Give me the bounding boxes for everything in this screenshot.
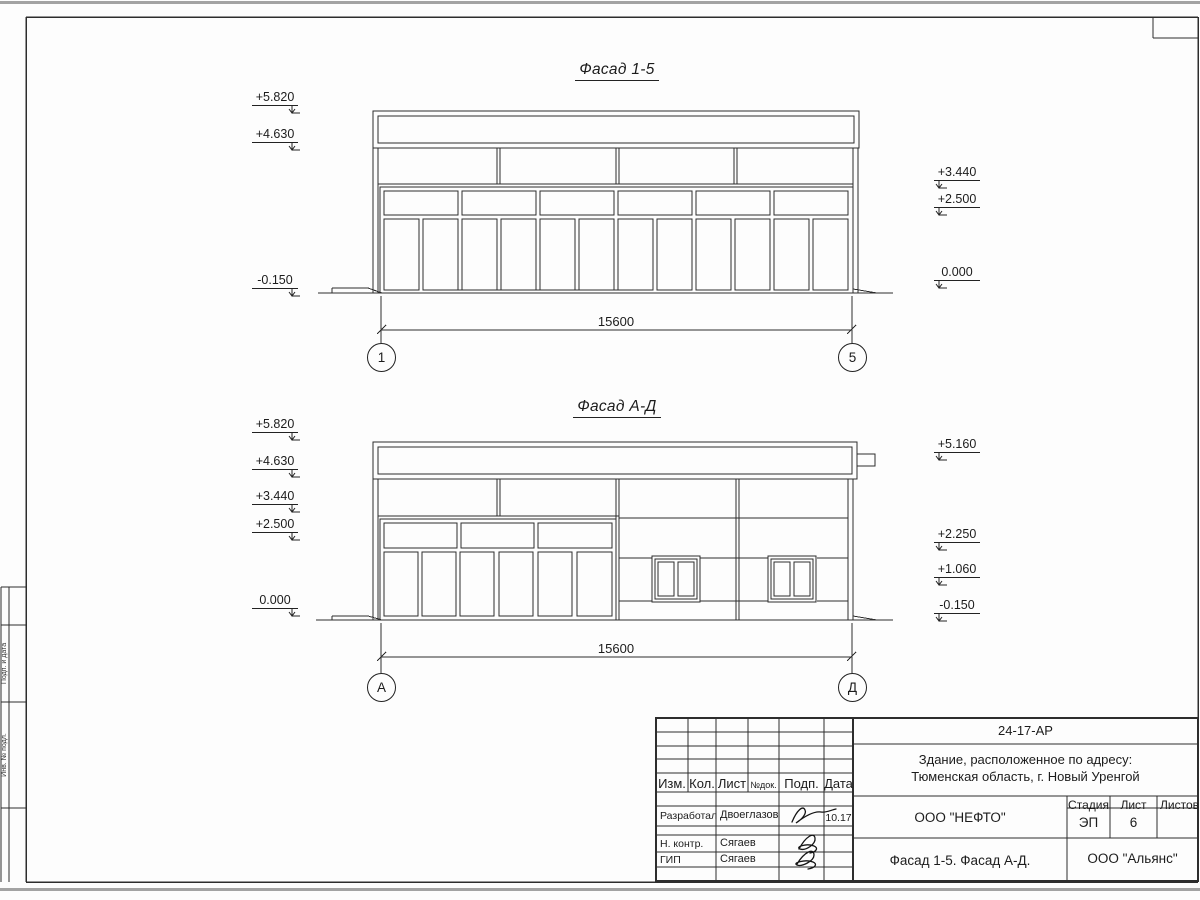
elevation-mark: +5.820 — [252, 91, 298, 106]
elevation-mark: +3.440 — [252, 490, 298, 505]
facade-a-d-title: Фасад А-Д — [517, 398, 717, 416]
role-nkontr: Н. контр. — [660, 838, 703, 850]
drawing-sheet: Фасад 1-5 Фасад А-Д +5.820 +4.630 -0.150… — [0, 0, 1200, 900]
elevation-arrow-icon — [932, 280, 947, 290]
elevation-mark: +5.820 — [252, 418, 298, 433]
elevation-mark: -0.150 — [252, 274, 298, 289]
col-header-list: Лист — [716, 776, 748, 791]
sheets-label: Листов — [1157, 798, 1200, 812]
elevation-mark: +5.160 — [934, 438, 980, 453]
sheet-title: Фасад 1-5. Фасад А-Д. — [853, 853, 1067, 868]
elevation-arrow-icon — [285, 504, 300, 514]
name-dvoeglazov: Двоеглазов — [720, 809, 778, 821]
elevation-arrow-icon — [285, 469, 300, 479]
sheet-value: 6 — [1110, 815, 1157, 830]
elevation-mark: +2.250 — [934, 528, 980, 543]
elevation-arrow-icon — [932, 542, 947, 552]
facade-a-d-linework — [316, 442, 893, 673]
elevation-arrow-icon — [285, 608, 300, 618]
facade-1-5-title: Фасад 1-5 — [517, 61, 717, 79]
elevation-mark: -0.150 — [934, 599, 980, 614]
object-address: Здание, расположенное по адресу: Тюменск… — [853, 751, 1198, 785]
elevation-mark: +3.440 — [934, 166, 980, 181]
elevation-arrow-icon — [285, 142, 300, 152]
stage-label: Стадия — [1067, 798, 1110, 812]
elevation-arrow-icon — [932, 613, 947, 623]
dimension-label-facade-a-d: 15600 — [541, 641, 691, 656]
axis-bubble-5: 5 — [838, 343, 867, 372]
name-syagaev-1: Сягаев — [720, 837, 756, 849]
elevation-mark: 0.000 — [934, 266, 980, 281]
doc-number: 24-17-АР — [853, 723, 1198, 738]
elevation-arrow-icon — [285, 432, 300, 442]
elevation-mark: +4.630 — [252, 128, 298, 143]
margin-stamp-inv-n-podl: Инв. № подл. — [1, 704, 8, 806]
elevation-mark: +4.630 — [252, 455, 298, 470]
elevation-mark: 0.000 — [252, 594, 298, 609]
axis-bubble-a: А — [367, 673, 396, 702]
stage-value: ЭП — [1067, 815, 1110, 830]
col-header-kol: Кол. — [688, 776, 716, 791]
axis-bubble-1: 1 — [367, 343, 396, 372]
dimension-label-facade-1-5: 15600 — [541, 314, 691, 329]
elevation-arrow-icon — [932, 180, 947, 190]
col-header-data: Дата — [824, 776, 853, 791]
col-header-ndok: №док. — [748, 780, 779, 790]
elevation-mark: +2.500 — [934, 193, 980, 208]
elevation-mark: +1.060 — [934, 563, 980, 578]
name-syagaev-2: Сягаев — [720, 853, 756, 865]
elevation-arrow-icon — [932, 207, 947, 217]
role-razrabotal: Разработал — [660, 810, 717, 822]
date-10-17: 10.17 — [824, 812, 853, 824]
contractor-org: ООО "Альянс" — [1067, 851, 1198, 866]
margin-stamp-podp-i-data: Подп. и дата — [1, 627, 8, 700]
elevation-arrow-icon — [932, 577, 947, 587]
elevation-arrow-icon — [285, 105, 300, 115]
elevation-mark: +2.500 — [252, 518, 298, 533]
object-address-line2: Тюменская область, г. Новый Уренгой — [853, 768, 1198, 785]
axis-bubble-d: Д — [838, 673, 867, 702]
elevation-arrow-icon — [285, 532, 300, 542]
signature-nkontr — [799, 835, 817, 853]
role-gip: ГИП — [660, 854, 681, 866]
elevation-arrow-icon — [285, 288, 300, 298]
sheet-label: Лист — [1110, 798, 1157, 812]
facade-1-5-linework — [318, 111, 893, 343]
object-address-line1: Здание, расположенное по адресу: — [853, 751, 1198, 768]
developer-org: ООО "НЕФТО" — [853, 810, 1067, 825]
col-header-izm: Изм. — [656, 776, 688, 791]
elevation-arrow-icon — [932, 452, 947, 462]
signature-gip — [796, 851, 816, 869]
col-header-podp: Подп. — [779, 776, 824, 791]
